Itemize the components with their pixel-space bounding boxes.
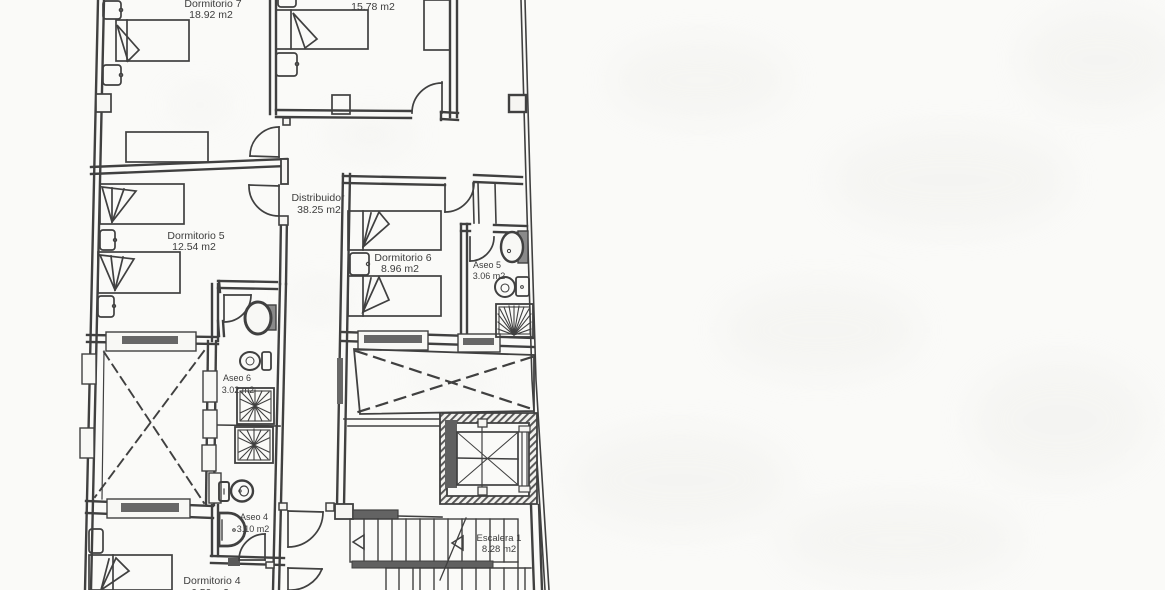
svg-text:18.92 m2: 18.92 m2	[189, 9, 233, 21]
svg-text:12.54 m2: 12.54 m2	[172, 241, 216, 253]
svg-text:8.28 m2: 8.28 m2	[482, 544, 516, 555]
svg-text:Escalera 1: Escalera 1	[477, 533, 522, 544]
svg-text:38.25 m2: 38.25 m2	[297, 204, 341, 216]
svg-text:Aseo 5: Aseo 5	[473, 260, 501, 270]
svg-text:3.06 m2: 3.06 m2	[473, 271, 506, 281]
svg-text:3.02 m2: 3.02 m2	[222, 385, 255, 395]
svg-text:Dormitorio 4: Dormitorio 4	[183, 575, 240, 587]
svg-text:Aseo 4: Aseo 4	[240, 512, 268, 522]
svg-text:Distribuidor: Distribuidor	[291, 192, 345, 204]
svg-text:Aseo 6: Aseo 6	[223, 373, 251, 383]
svg-text:8.96 m2: 8.96 m2	[381, 263, 419, 275]
svg-text:3.10 m2: 3.10 m2	[237, 524, 270, 534]
svg-text:15.78 m2: 15.78 m2	[351, 1, 395, 13]
